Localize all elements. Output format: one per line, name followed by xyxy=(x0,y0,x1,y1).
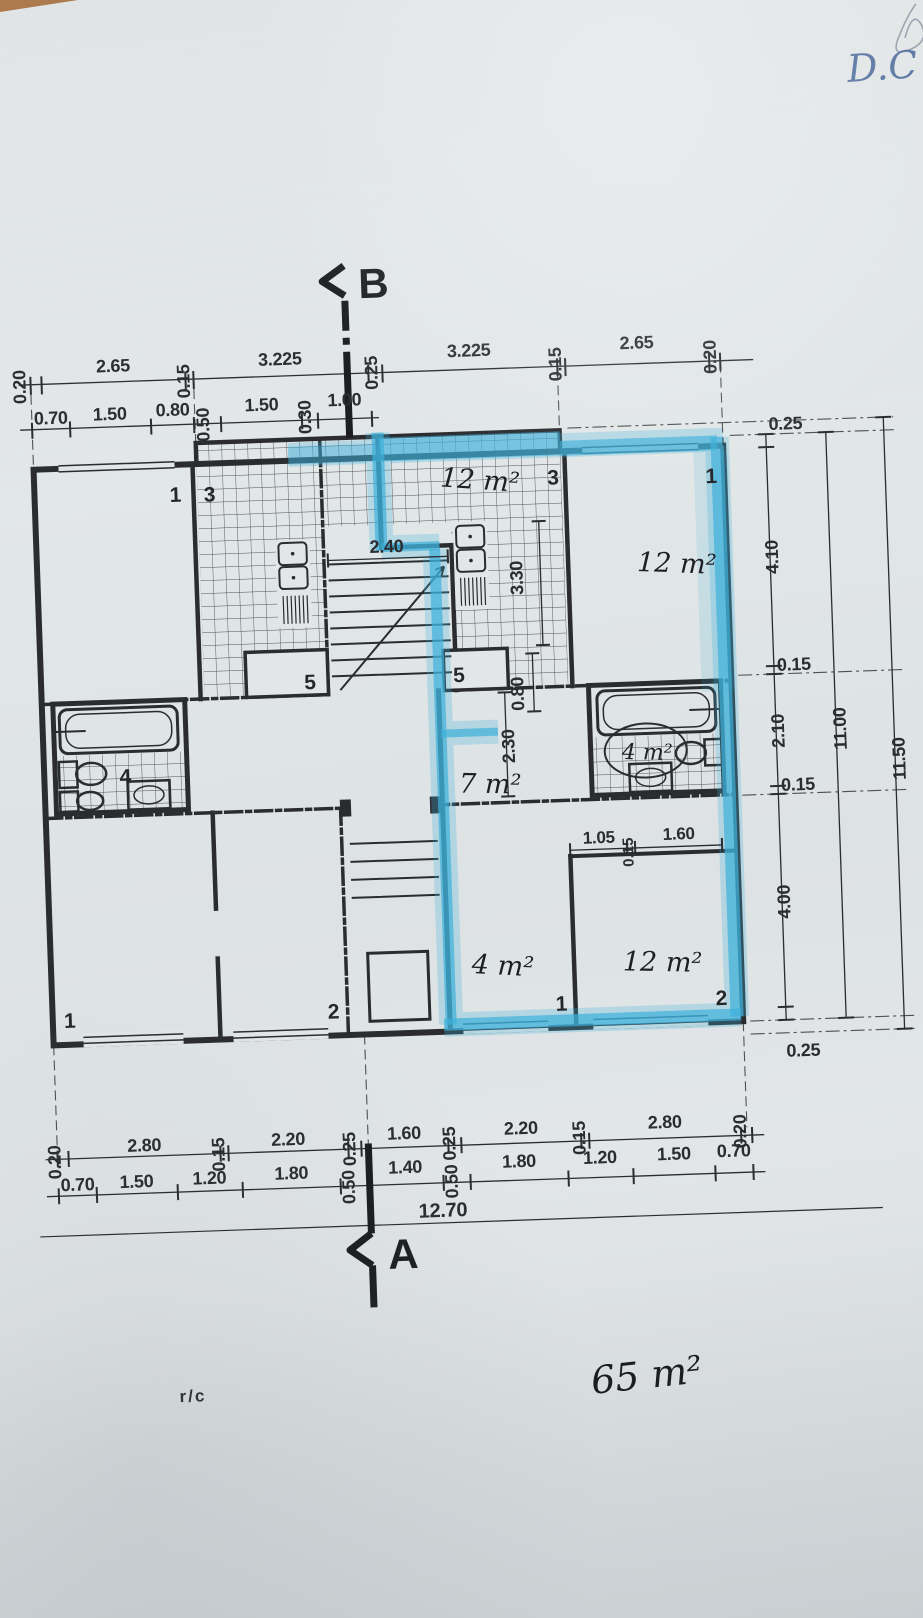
room2R-top-wall xyxy=(570,850,737,856)
section-label-top: B xyxy=(357,259,389,307)
dim-seg-a: 1.05 xyxy=(582,828,615,848)
wall-hallR-room2R xyxy=(570,856,576,1027)
dim-right-2: 0.15 xyxy=(777,654,812,675)
door-jamb-left xyxy=(340,800,351,816)
dim-hall-depth: 2.30 xyxy=(498,729,519,764)
dim-bot1-1: 2.80 xyxy=(127,1135,162,1156)
entry-steps xyxy=(350,841,440,898)
bathtub-left-tap xyxy=(54,731,86,732)
dim-top1-4: 0.25 xyxy=(361,355,382,390)
dim-right-3: 2.10 xyxy=(768,713,789,748)
dim-kitchen-depth: 3.30 xyxy=(506,560,527,595)
dim-top1-2: 0.15 xyxy=(173,364,194,399)
highlight-center-wall xyxy=(377,433,381,551)
dim-right-total-inner: 11.00 xyxy=(829,707,850,751)
dim-right-5: 4.00 xyxy=(774,884,795,919)
dim-bot2-2: 1.20 xyxy=(192,1167,227,1188)
roomnum-bath-left: 4 xyxy=(119,765,132,788)
area-upper-right-room: 12 m² xyxy=(637,547,717,581)
dim-top2-2: 0.80 xyxy=(155,399,190,420)
dim-top1-1: 2.65 xyxy=(96,355,131,376)
roomnum-upper-right: 1 xyxy=(705,465,718,488)
dim-top1-5: 3.225 xyxy=(447,340,492,362)
dim-right-6: 0.25 xyxy=(786,1040,821,1061)
bathtub-left-inner xyxy=(65,711,172,749)
dim-bot1-5: 1.60 xyxy=(387,1123,422,1144)
dim-bot2-7: 1.80 xyxy=(502,1151,537,1172)
section-arrow-A-icon xyxy=(349,1233,372,1266)
hall-closet xyxy=(368,951,430,1021)
dim-top1-0: 0.20 xyxy=(9,370,30,405)
section-line-A xyxy=(368,1143,374,1307)
dim-top2-1: 1.50 xyxy=(92,403,127,424)
dim-bot2-9: 1.50 xyxy=(657,1143,692,1164)
initials-handwriting: D.C xyxy=(845,42,919,91)
dim-bot1-4: 0.25 xyxy=(339,1132,360,1167)
window-bottom-1 xyxy=(83,1030,183,1047)
dim-bot1-6: 0.25 xyxy=(439,1126,460,1161)
section-arrow-B-icon xyxy=(322,266,345,297)
highlight-top-left xyxy=(288,453,378,456)
area-lower-hall: 4 m² xyxy=(470,949,535,983)
area-right-bathroom: 4 m² xyxy=(621,740,673,766)
area-lower-right-room: 12 m² xyxy=(623,946,703,978)
rotated-plan-group: B A 0.20 2.65 0.15 3.225 0.25 3.225 0.15… xyxy=(6,242,923,1411)
roomnum-store-right: 5 xyxy=(453,664,466,687)
total-area-handwriting: 65 m² xyxy=(589,1347,705,1402)
dimline-right-1150 xyxy=(883,417,904,1029)
roomnum-lower-left2: 2 xyxy=(327,1000,339,1023)
section-line-B xyxy=(345,301,350,438)
wall-lower-hallL xyxy=(341,808,349,1035)
roomnum-kitchen-right: 3 xyxy=(547,466,559,489)
dim-right-0: 0.25 xyxy=(768,413,803,434)
roomnum-lower-hall-right: 1 xyxy=(555,992,568,1015)
dim-bot2-1: 1.50 xyxy=(119,1171,154,1192)
dim-top1-3: 3.225 xyxy=(258,348,303,370)
paper-edge-corner xyxy=(0,0,78,12)
area-mid-hall: 7 m² xyxy=(459,768,522,800)
roomnum-lower-right: 2 xyxy=(715,987,727,1010)
dim-right-1: 4.10 xyxy=(761,539,782,574)
window-bottom-2 xyxy=(233,1025,328,1042)
dim-top2-6: 1.00 xyxy=(327,389,362,410)
scanned-floorplan-photo: B A 0.20 2.65 0.15 3.225 0.25 3.225 0.15… xyxy=(0,0,923,1618)
area-upper-kitchen: 12 m² xyxy=(439,462,520,498)
dim-bot2-4: 0.50 xyxy=(338,1170,359,1205)
dim-bot2-3: 1.80 xyxy=(274,1163,309,1184)
dim-right-total-outer: 11.50 xyxy=(888,737,909,781)
roomnum-lower-left: 1 xyxy=(64,1010,77,1033)
dim-bot2-0: 0.70 xyxy=(60,1174,95,1195)
highlight-hall-stub xyxy=(441,732,498,734)
highlight-top-right xyxy=(560,443,717,448)
dim-bottom-total: 12.70 xyxy=(418,1199,467,1223)
roomnum-store-left: 5 xyxy=(304,671,317,694)
dim-pass-width: 0.80 xyxy=(507,676,528,711)
printed-text: B A 0.20 2.65 0.15 3.225 0.25 3.225 0.15… xyxy=(6,242,923,1411)
floor-label: r/c xyxy=(179,1386,206,1406)
roomnum-upper-left: 1 xyxy=(169,484,182,507)
dim-top1-6: 0.15 xyxy=(545,347,566,382)
roomnum-kitchen-left: 3 xyxy=(203,483,215,506)
wall-lower-left xyxy=(213,813,221,1040)
dim-bot1-3: 2.20 xyxy=(271,1129,306,1150)
highlight-top-terrace xyxy=(378,443,560,449)
dim-top2-0: 0.70 xyxy=(34,407,69,428)
dim-seg-b: 0.15 xyxy=(620,837,638,867)
dim-bot2-6: 0.50 xyxy=(441,1164,462,1199)
dim-stair-width: 2.40 xyxy=(369,536,404,557)
dim-top1-8: 0.20 xyxy=(699,340,720,375)
dim-bot1-7: 2.20 xyxy=(504,1118,539,1139)
window-top-left xyxy=(58,458,174,475)
section-label-bottom: A xyxy=(387,1230,419,1278)
floorplan-drawing: B A 0.20 2.65 0.15 3.225 0.25 3.225 0.15… xyxy=(0,0,923,1618)
dim-top2-4: 1.50 xyxy=(244,394,279,415)
dim-bot2-10: 0.70 xyxy=(716,1140,751,1161)
dim-right-4: 0.15 xyxy=(781,774,816,795)
dim-top1-7: 2.65 xyxy=(619,332,654,353)
dim-bot2-5: 1.40 xyxy=(388,1157,423,1178)
dim-bot1-9: 2.80 xyxy=(647,1111,682,1132)
dim-seg-c: 1.60 xyxy=(662,824,695,844)
dim-top2-5: 0.30 xyxy=(294,400,315,435)
dim-bot2-8: 1.20 xyxy=(583,1147,618,1168)
dim-top2-3: 0.50 xyxy=(193,407,214,442)
